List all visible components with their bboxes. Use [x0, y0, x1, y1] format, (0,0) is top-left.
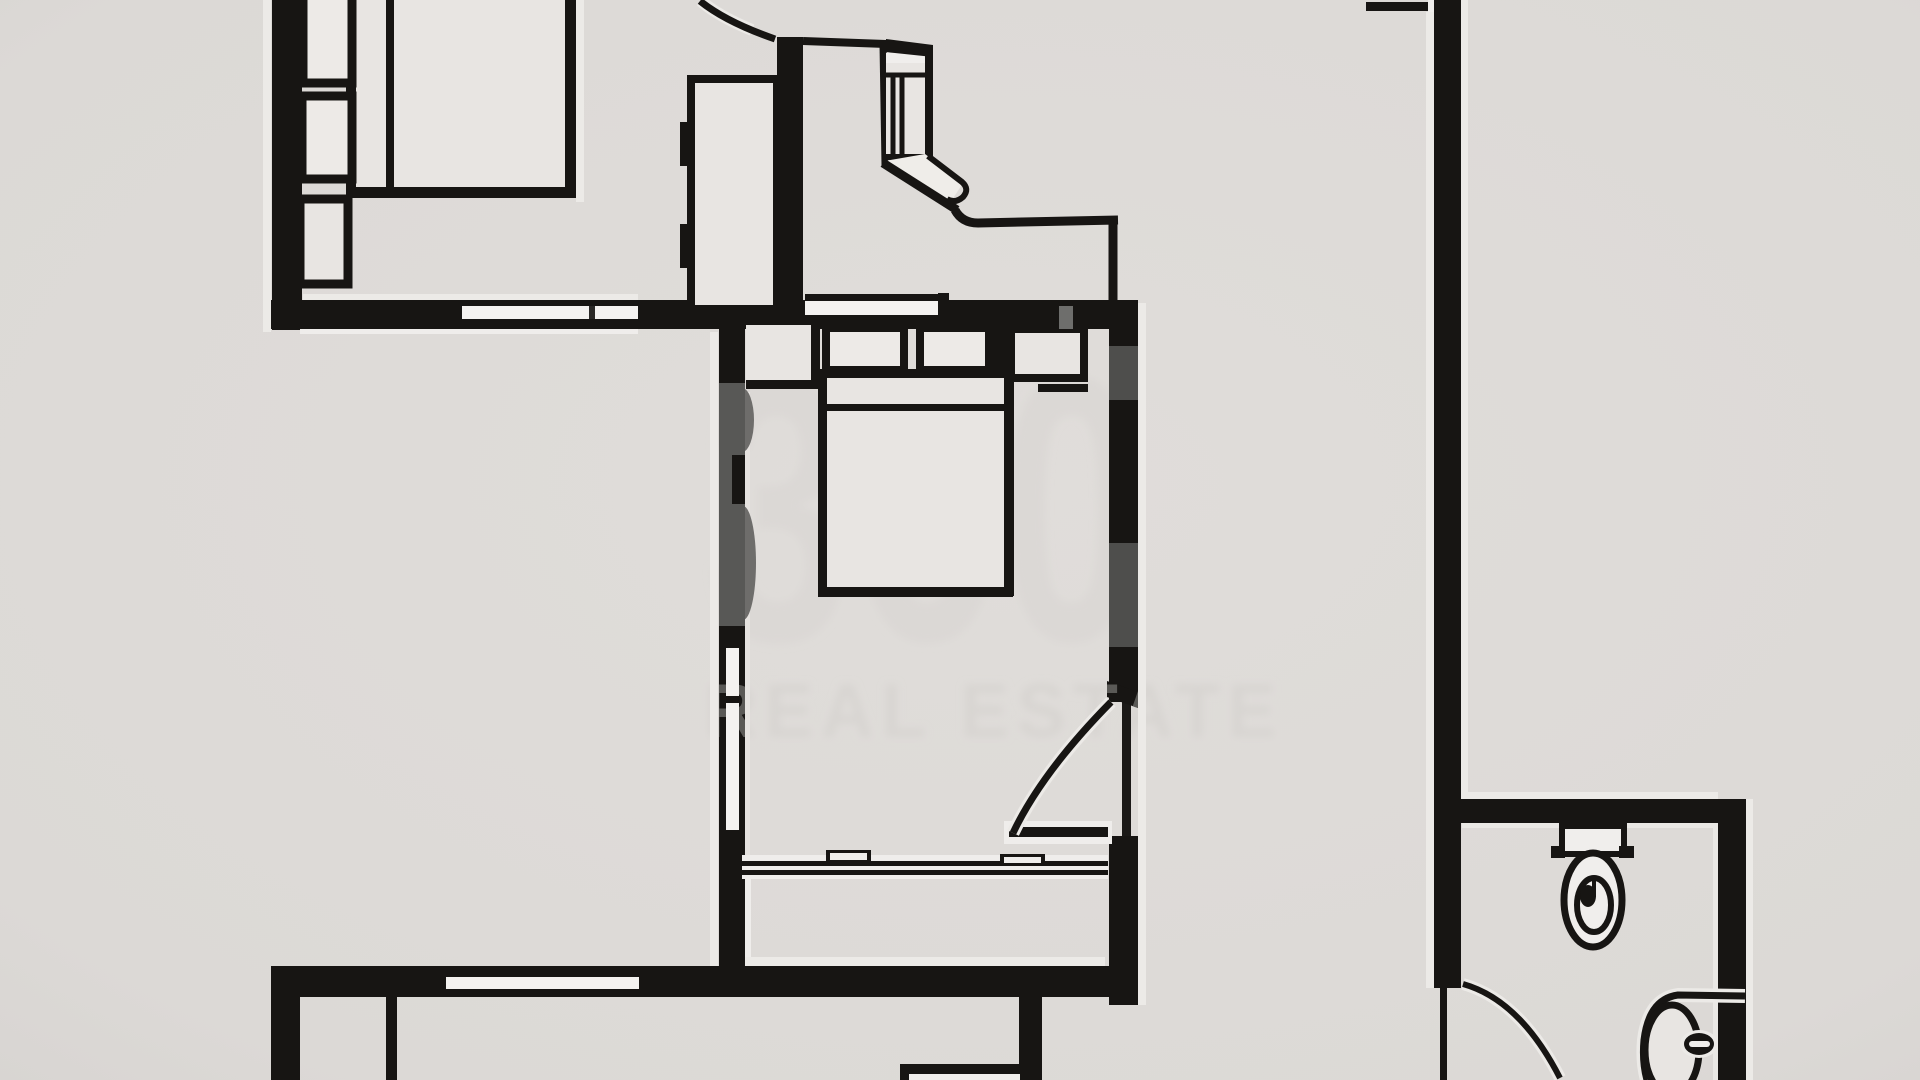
svg-text:REAL ESTATE: REAL ESTATE: [704, 669, 1284, 754]
